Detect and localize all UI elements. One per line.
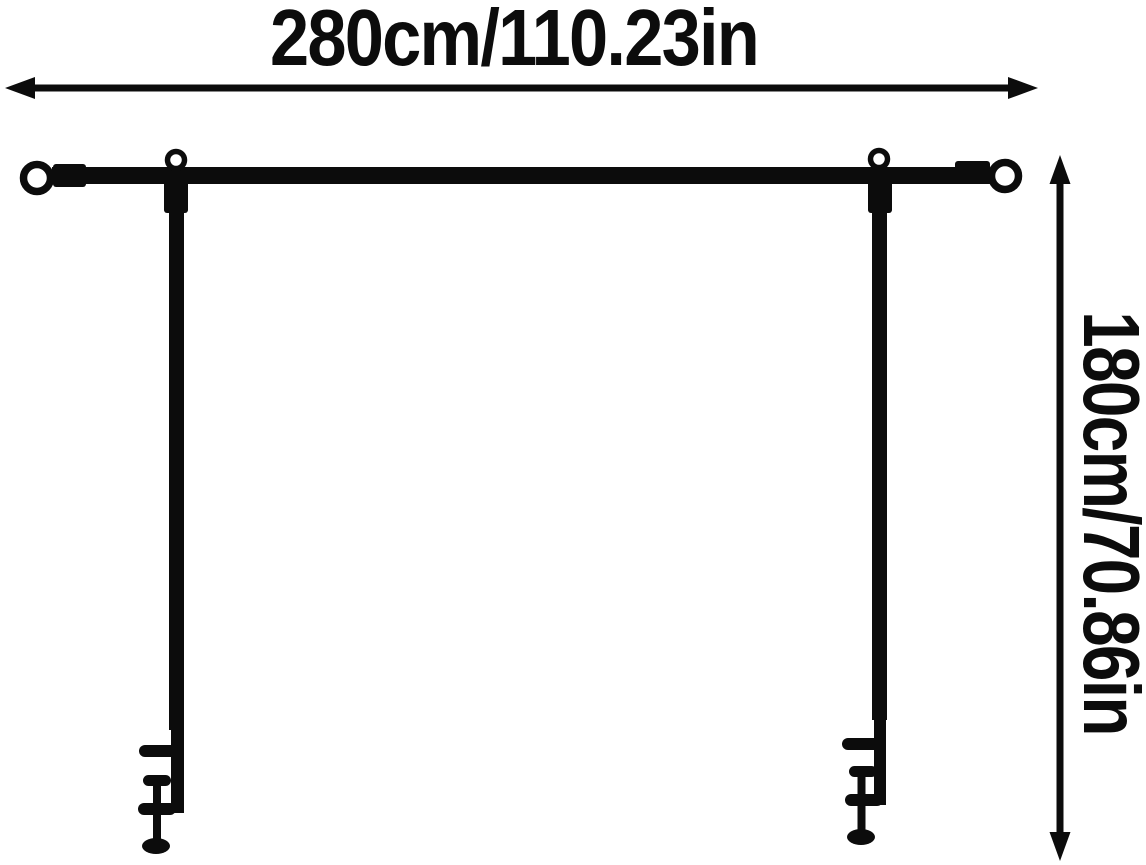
left-table-clamp-icon [138, 724, 184, 854]
dimension-diagram-canvas: 280cm/110.23in [0, 0, 1146, 865]
crossbar-left-coupler [53, 164, 86, 187]
height-arrow-bottom-head [1050, 832, 1071, 861]
left-clamp-top-arm [139, 745, 181, 757]
height-arrow-shaft [1057, 180, 1064, 836]
right-clamp-screw-shaft [858, 776, 866, 833]
right-end-ring-icon [992, 163, 1019, 190]
height-dimension-label: 180cm/70.86in [1067, 311, 1146, 735]
left-upright [169, 184, 184, 730]
width-arrow-left-head [5, 77, 35, 99]
crossbar [52, 167, 990, 184]
garment-rack [24, 151, 1019, 855]
width-arrow-right-head [1008, 77, 1038, 99]
right-clamp-body [874, 716, 886, 805]
right-pole-ring-icon [871, 151, 888, 168]
right-clamp-screw-pad [849, 766, 877, 777]
crossbar-right-coupler [955, 161, 990, 184]
height-arrow-top-head [1050, 155, 1071, 184]
left-clamp-knob [142, 838, 170, 854]
diagram-ink: 280cm/110.23in [5, 0, 1146, 861]
left-pole-ring-icon [168, 152, 185, 169]
right-clamp-knob [847, 829, 875, 845]
right-upright [872, 184, 887, 720]
product-dimension-diagram: 280cm/110.23in [0, 0, 1146, 865]
right-clamp-top-arm [842, 738, 884, 750]
width-arrow-shaft [28, 85, 1013, 92]
width-dimension-label: 280cm/110.23in [270, 0, 758, 82]
right-table-clamp-icon [842, 716, 886, 845]
left-end-ring-icon [24, 165, 51, 192]
left-clamp-body [171, 724, 184, 813]
left-clamp-screw-shaft [153, 784, 161, 842]
